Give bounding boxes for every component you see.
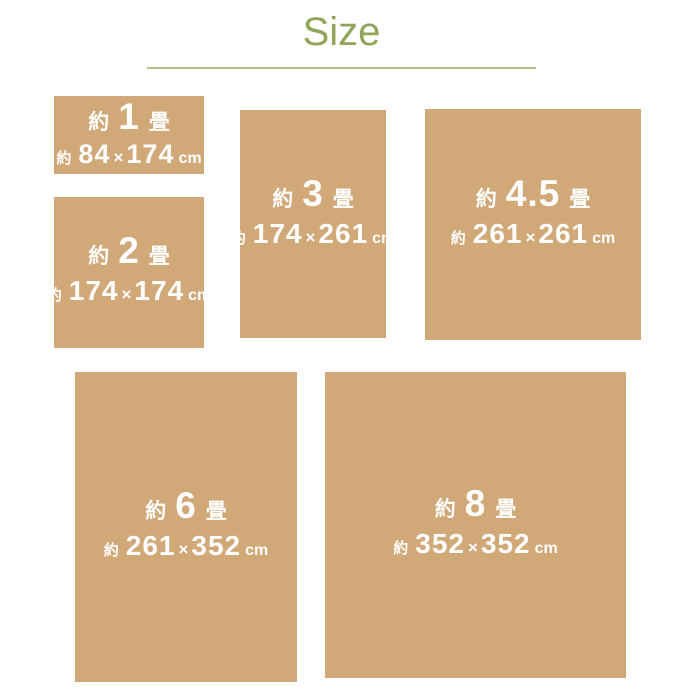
dimension-prefix: 約 <box>231 227 246 248</box>
size-card-1jo: 約 1 畳 約 84 × 174 cm <box>54 96 204 174</box>
page-title: Size <box>147 10 536 54</box>
tatami-label: 約 3 畳 <box>272 175 354 213</box>
size-card-3jo: 約 3 畳 約 174 × 261 cm <box>240 110 386 338</box>
size-card-8jo: 約 8 畳 約 352 × 352 cm <box>325 372 626 678</box>
size-card-content: 約 2 畳 約 174 × 174 cm <box>47 232 212 305</box>
dimension-unit: cm <box>372 230 395 248</box>
dimension-unit: cm <box>592 230 615 248</box>
tatami-count: 1 <box>118 98 140 135</box>
tatami-prefix: 約 <box>272 183 293 213</box>
size-diagram: Size 約 1 畳 約 84 × 174 cm 約 2 畳 <box>0 0 700 700</box>
dimension-unit: cm <box>178 150 201 168</box>
tatami-prefix: 約 <box>145 495 166 525</box>
size-card-content: 約 3 畳 約 174 × 261 cm <box>231 175 396 248</box>
size-card-6jo: 約 6 畳 約 261 × 352 cm <box>75 372 297 682</box>
times-symbol: × <box>468 538 478 558</box>
tatami-prefix: 約 <box>476 183 497 213</box>
dimension-unit: cm <box>188 287 211 305</box>
dimension-prefix: 約 <box>47 284 62 305</box>
tatami-count: 6 <box>175 487 197 524</box>
dimension-height: 352 <box>481 530 531 558</box>
tatami-count: 4.5 <box>506 175 560 212</box>
dimension-width: 261 <box>126 532 176 560</box>
tatami-suffix: 畳 <box>149 240 170 270</box>
tatami-suffix: 畳 <box>495 493 516 523</box>
dimension-height: 261 <box>538 220 588 248</box>
dimension-height: 174 <box>134 277 184 305</box>
tatami-suffix: 畳 <box>149 106 170 136</box>
size-card-2jo: 約 2 畳 約 174 × 174 cm <box>54 197 204 348</box>
dimension-label: 約 84 × 174 cm <box>56 141 201 168</box>
dimension-label: 約 174 × 174 cm <box>47 277 212 305</box>
tatami-prefix: 約 <box>88 106 109 136</box>
dimension-label: 約 174 × 261 cm <box>231 220 396 248</box>
size-card-4.5jo: 約 4.5 畳 約 261 × 261 cm <box>425 109 641 340</box>
size-card-content: 約 6 畳 約 261 × 352 cm <box>104 487 269 560</box>
dimension-prefix: 約 <box>104 539 119 560</box>
dimension-label: 約 261 × 352 cm <box>104 532 269 560</box>
size-card-content: 約 1 畳 約 84 × 174 cm <box>56 98 201 168</box>
title-underline <box>147 67 536 69</box>
tatami-label: 約 2 畳 <box>88 232 170 270</box>
dimension-width: 261 <box>473 220 523 248</box>
tatami-label: 約 8 畳 <box>435 485 517 523</box>
dimension-label: 約 352 × 352 cm <box>393 530 558 558</box>
dimension-width: 174 <box>69 277 119 305</box>
tatami-count: 3 <box>302 175 324 212</box>
dimension-prefix: 約 <box>56 147 71 168</box>
dimension-label: 約 261 × 261 cm <box>451 220 616 248</box>
times-symbol: × <box>525 228 535 248</box>
tatami-suffix: 畳 <box>333 183 354 213</box>
times-symbol: × <box>113 148 123 168</box>
tatami-count: 8 <box>465 485 487 522</box>
dimension-height: 352 <box>191 532 241 560</box>
times-symbol: × <box>305 228 315 248</box>
dimension-width: 84 <box>78 141 110 168</box>
tatami-prefix: 約 <box>435 493 456 523</box>
dimension-width: 352 <box>415 530 465 558</box>
dimension-unit: cm <box>535 540 558 558</box>
size-card-content: 約 8 畳 約 352 × 352 cm <box>393 485 558 558</box>
tatami-suffix: 畳 <box>569 183 590 213</box>
tatami-suffix: 畳 <box>206 495 227 525</box>
dimension-unit: cm <box>245 542 268 560</box>
tatami-label: 約 4.5 畳 <box>476 175 590 213</box>
tatami-label: 約 6 畳 <box>145 487 227 525</box>
times-symbol: × <box>178 540 188 560</box>
tatami-label: 約 1 畳 <box>88 98 170 136</box>
tatami-count: 2 <box>118 232 140 269</box>
size-card-content: 約 4.5 畳 約 261 × 261 cm <box>451 175 616 248</box>
dimension-height: 174 <box>126 141 174 168</box>
dimension-height: 261 <box>318 220 368 248</box>
times-symbol: × <box>121 285 131 305</box>
dimension-prefix: 約 <box>451 227 466 248</box>
tatami-prefix: 約 <box>88 240 109 270</box>
dimension-width: 174 <box>253 220 303 248</box>
dimension-prefix: 約 <box>393 537 408 558</box>
